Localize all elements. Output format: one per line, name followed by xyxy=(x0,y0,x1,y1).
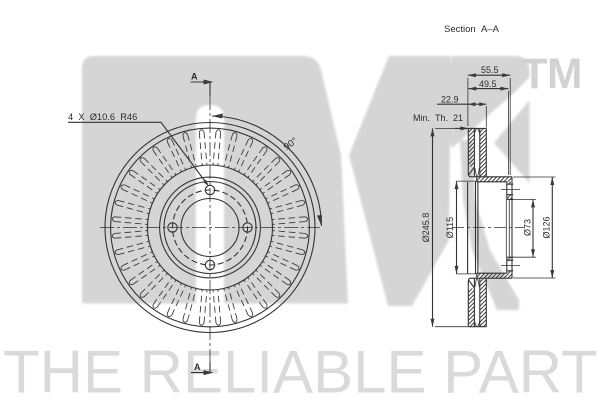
svg-text:49.5: 49.5 xyxy=(479,79,497,89)
svg-text:THE RELIABLE PART: THE RELIABLE PART xyxy=(3,339,598,400)
svg-text:Section A–A: Section A–A xyxy=(444,24,500,35)
svg-text:A: A xyxy=(191,71,198,81)
svg-text:Ø73: Ø73 xyxy=(523,219,533,236)
svg-text:Ø115: Ø115 xyxy=(445,217,455,238)
svg-text:Ø245.8: Ø245.8 xyxy=(421,213,431,243)
svg-text:Min. Th. 21: Min. Th. 21 xyxy=(413,113,463,123)
svg-text:55.5: 55.5 xyxy=(481,65,499,75)
svg-text:Ø126: Ø126 xyxy=(542,216,552,238)
svg-text:22.9: 22.9 xyxy=(441,95,459,105)
svg-text:A: A xyxy=(194,362,201,372)
svg-text:4 X Ø10.6 R46: 4 X Ø10.6 R46 xyxy=(68,112,137,122)
svg-text:TM: TM xyxy=(522,51,582,98)
